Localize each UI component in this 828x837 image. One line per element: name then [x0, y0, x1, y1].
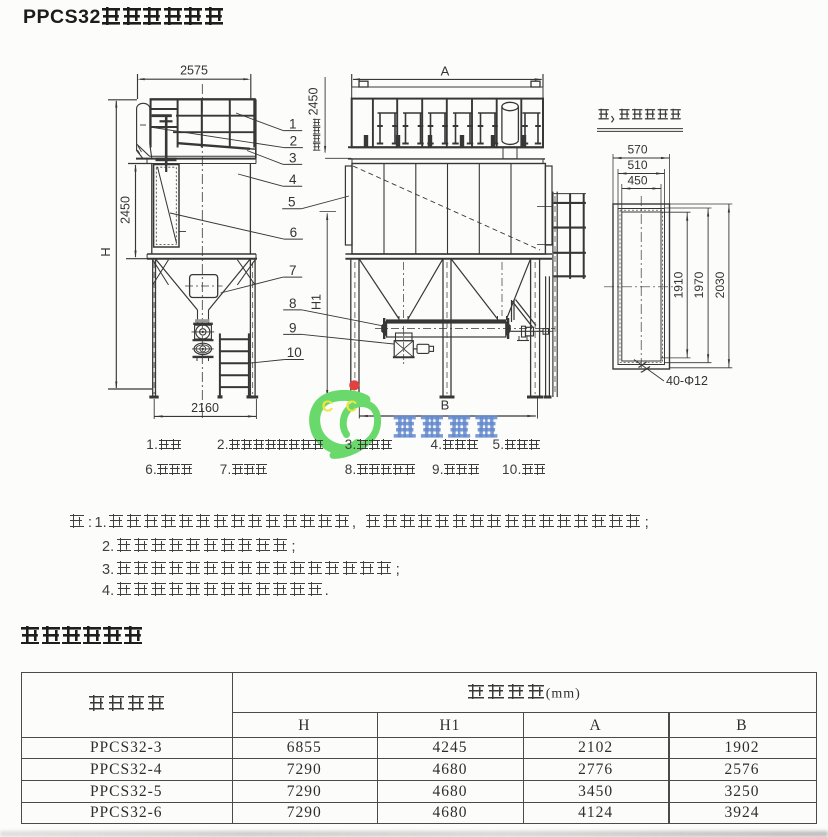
svg-text:C: C [322, 399, 334, 416]
svg-text:2030: 2030 [713, 271, 727, 298]
svg-text:H: H [98, 247, 113, 256]
svg-text:8: 8 [289, 296, 297, 311]
svg-text:2450: 2450 [306, 88, 320, 116]
svg-text:1910: 1910 [671, 271, 685, 298]
svg-text:10: 10 [287, 345, 302, 360]
svg-text:2450: 2450 [119, 196, 133, 224]
svg-text:1: 1 [289, 117, 297, 132]
svg-text:9: 9 [289, 320, 297, 335]
svg-text:2160: 2160 [191, 401, 219, 415]
svg-text:H1: H1 [309, 294, 323, 310]
svg-text:A: A [441, 64, 450, 79]
svg-text:C: C [346, 399, 358, 416]
svg-text:4: 4 [289, 172, 297, 187]
svg-text:3: 3 [289, 150, 297, 165]
svg-text:B: B [441, 398, 450, 413]
svg-text:6: 6 [290, 225, 298, 240]
svg-text:510: 510 [627, 158, 647, 172]
svg-text:450: 450 [627, 174, 647, 188]
svg-text:570: 570 [627, 143, 647, 157]
svg-text:2575: 2575 [180, 64, 208, 78]
svg-text:40-Φ12: 40-Φ12 [666, 374, 708, 388]
svg-text:5: 5 [288, 195, 296, 210]
svg-text:7: 7 [289, 263, 297, 278]
svg-text:2: 2 [290, 133, 298, 148]
svg-text:1970: 1970 [692, 271, 706, 298]
